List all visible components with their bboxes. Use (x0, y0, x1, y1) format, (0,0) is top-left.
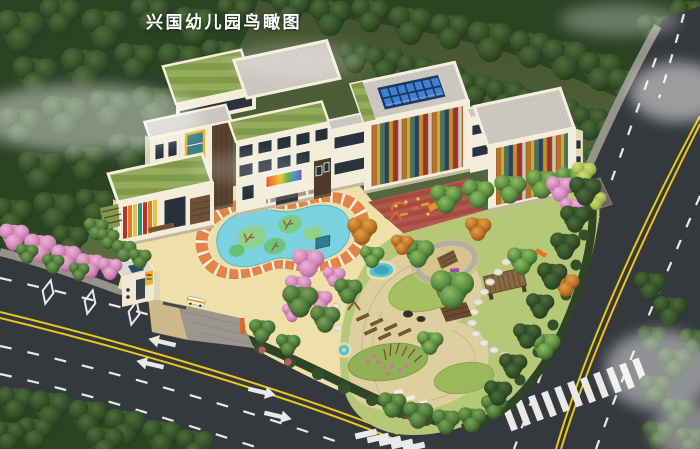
rendering-title: 兴国幼儿园鸟瞰图 (146, 8, 302, 33)
solar-block (351, 62, 470, 194)
kindergarten-aerial-rendering: 兴国幼儿园鸟瞰图 (0, 0, 700, 449)
scene-canvas (0, 0, 700, 449)
